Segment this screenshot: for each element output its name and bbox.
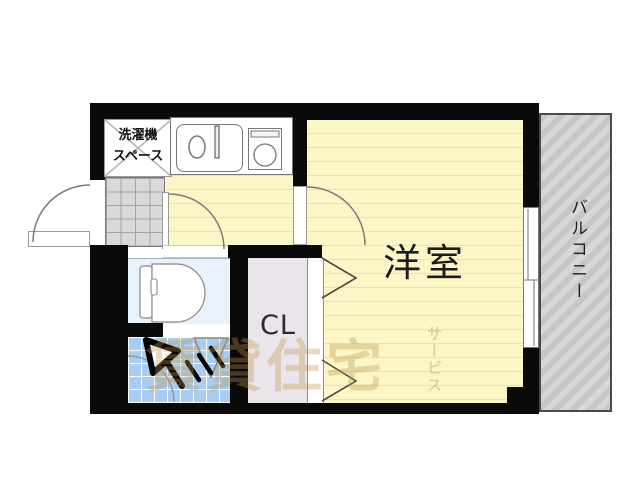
wall-closet-top: [228, 245, 322, 258]
watermark-subtext: サービス: [424, 326, 445, 394]
wall-corner-notch: [507, 387, 538, 414]
balcony-label: バルコニー: [560, 198, 590, 303]
room-door-leaf: [293, 186, 307, 245]
kitchen-sink-icon: [176, 124, 243, 172]
floor-plan: 洗濯機 スペース 洋室 CL バルコニー 賃貸住宅 サービス: [0, 0, 640, 480]
wall-left-lower: [90, 245, 128, 414]
washer-space-label: 洗濯機 スペース: [104, 126, 172, 168]
toilet-door-opening: [163, 245, 227, 258]
wall-kitchen-room-divider: [293, 120, 307, 186]
wall-bottom: [90, 403, 538, 414]
entrance-door-leaf: [28, 231, 90, 247]
wall-right-upper: [523, 103, 539, 207]
toilet-room-floor: [128, 258, 230, 324]
wall-left-upper: [90, 103, 105, 180]
washer-space-label-line1: 洗濯機: [104, 126, 172, 147]
toilet-door-leaf: [162, 192, 169, 249]
entrance-tile-floor: [105, 177, 165, 247]
watermark-text: 賃貸住宅: [146, 322, 386, 403]
stove-icon: [248, 128, 282, 170]
main-room-label: 洋室: [352, 232, 498, 287]
wall-top: [90, 103, 538, 120]
sliding-window: [523, 207, 539, 348]
washer-space-label-line2: スペース: [104, 147, 172, 168]
